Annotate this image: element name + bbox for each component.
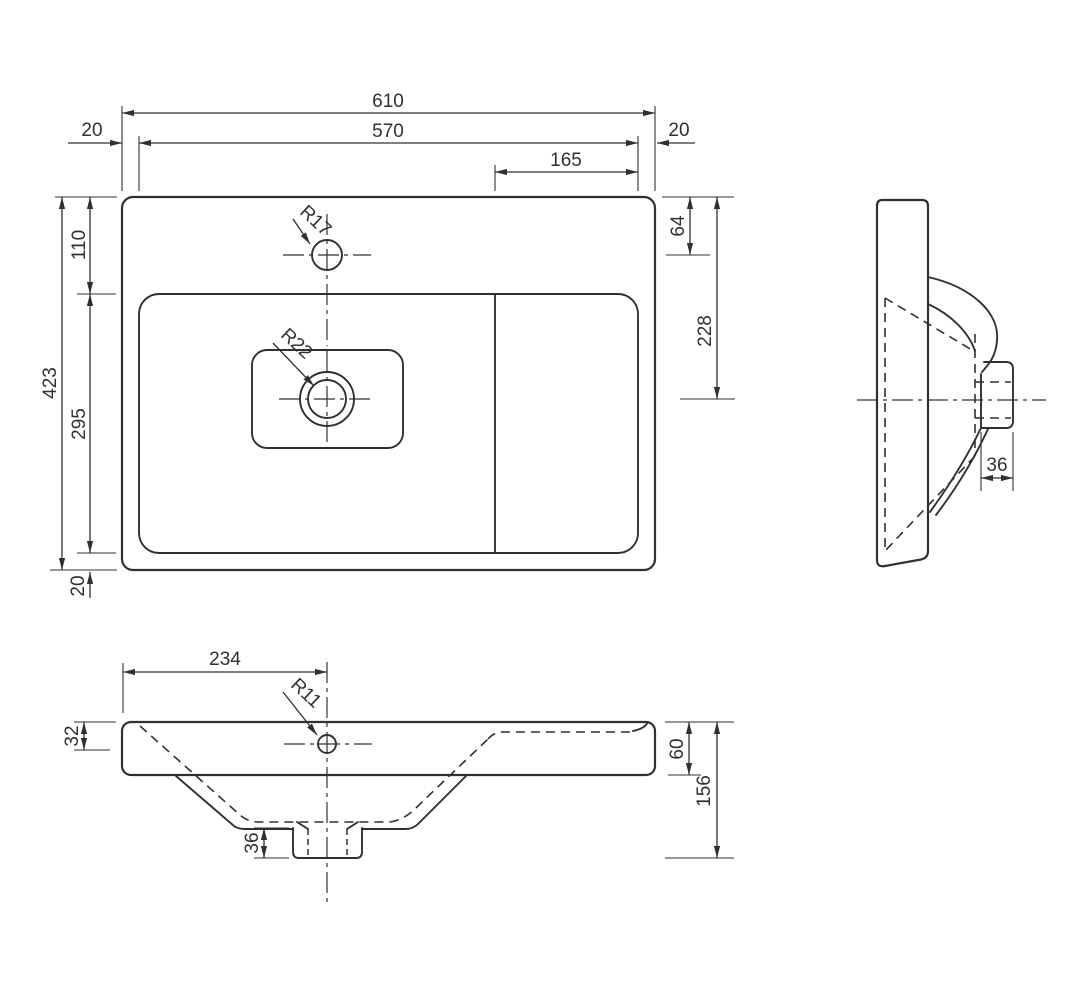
overflow-radius-callout: R11 [283, 674, 325, 735]
dim-label-faucet-radius: R17 [295, 201, 335, 240]
dim-label-overall-width: 610 [372, 91, 404, 112]
side-view: 36 [857, 200, 1046, 566]
drawing-sheet: R17 R22 610 570 [0, 0, 1080, 1000]
bowl-inner-curve [928, 304, 975, 351]
dim-label-faucet-offset: 64 [668, 215, 689, 237]
basin-outer-outline [122, 197, 655, 570]
dim-label-rim-right: 20 [668, 120, 689, 141]
drain-radius-label: R22 [276, 324, 316, 363]
drain-hole: R22 [252, 324, 403, 448]
dim-label-drain-from-left: 234 [209, 649, 241, 670]
bowl-right-outer-slope [362, 776, 466, 829]
dim-label-overall-height: 156 [694, 775, 715, 807]
dim-stub-height: 36 [242, 828, 289, 858]
dim-label-drain-offset: 228 [695, 315, 716, 347]
dim-label-stub-height: 36 [242, 832, 263, 853]
bowl-outer-curve [928, 277, 997, 372]
washbasin-drawing: R17 R22 610 570 [0, 0, 1080, 1000]
dim-label-overflow-radius: R11 [286, 674, 325, 712]
stub-left-bevel [297, 822, 308, 829]
hidden-basin-bottom-slope [885, 456, 975, 551]
dim-rim-left: 20 [68, 120, 122, 143]
dim-label-overall-depth: 423 [40, 367, 61, 399]
dim-rim-right: 20 [657, 120, 695, 143]
dim-label-apron-height: 60 [667, 738, 688, 759]
dim-label-basin-top-offset: 110 [69, 230, 90, 260]
dim-rim-thickness: 32 [62, 722, 116, 750]
dim-faucet-offset: 64 [662, 197, 734, 255]
dim-label-rim-left: 20 [81, 120, 102, 141]
hidden-basin-rim-line [488, 732, 634, 739]
bowl-bottom-outer-curve [930, 428, 981, 512]
hidden-bowl-right-slope [390, 739, 488, 822]
dim-apron-height: 60 [665, 722, 734, 775]
dim-rim-bottom: 20 [68, 572, 90, 598]
dim-label-basin-depth: 295 [69, 408, 90, 440]
faucet-radius-label: R17 [295, 201, 335, 240]
dim-basin-depth: 295 [69, 294, 116, 553]
overflow-radius-label: R11 [286, 674, 325, 712]
dim-stub-width: 36 [981, 432, 1013, 491]
basin-inner-outline [139, 294, 638, 553]
dim-label-rim-bottom: 20 [68, 575, 89, 596]
dim-label-shelf-width: 165 [550, 150, 582, 171]
dim-label-basin-width: 570 [372, 121, 404, 142]
bowl-bottom-inner-curve [936, 429, 988, 515]
dim-basin-top-offset: 110 [69, 197, 116, 294]
dim-label-drain-radius: R22 [276, 324, 316, 363]
dim-shelf-width: 165 [495, 150, 638, 191]
dim-label-stub-width: 36 [986, 455, 1007, 476]
stub-right-bevel [347, 822, 358, 829]
front-view: R11 234 32 36 60 156 [62, 649, 734, 906]
top-view: R17 R22 610 570 [40, 91, 735, 598]
bowl-left-outer-slope [176, 776, 293, 829]
faucet-hole: R17 [283, 201, 371, 346]
dim-label-rim-thickness: 32 [62, 725, 83, 746]
basin-rim-end-curve [633, 723, 648, 732]
front-slab-outline [122, 722, 655, 775]
